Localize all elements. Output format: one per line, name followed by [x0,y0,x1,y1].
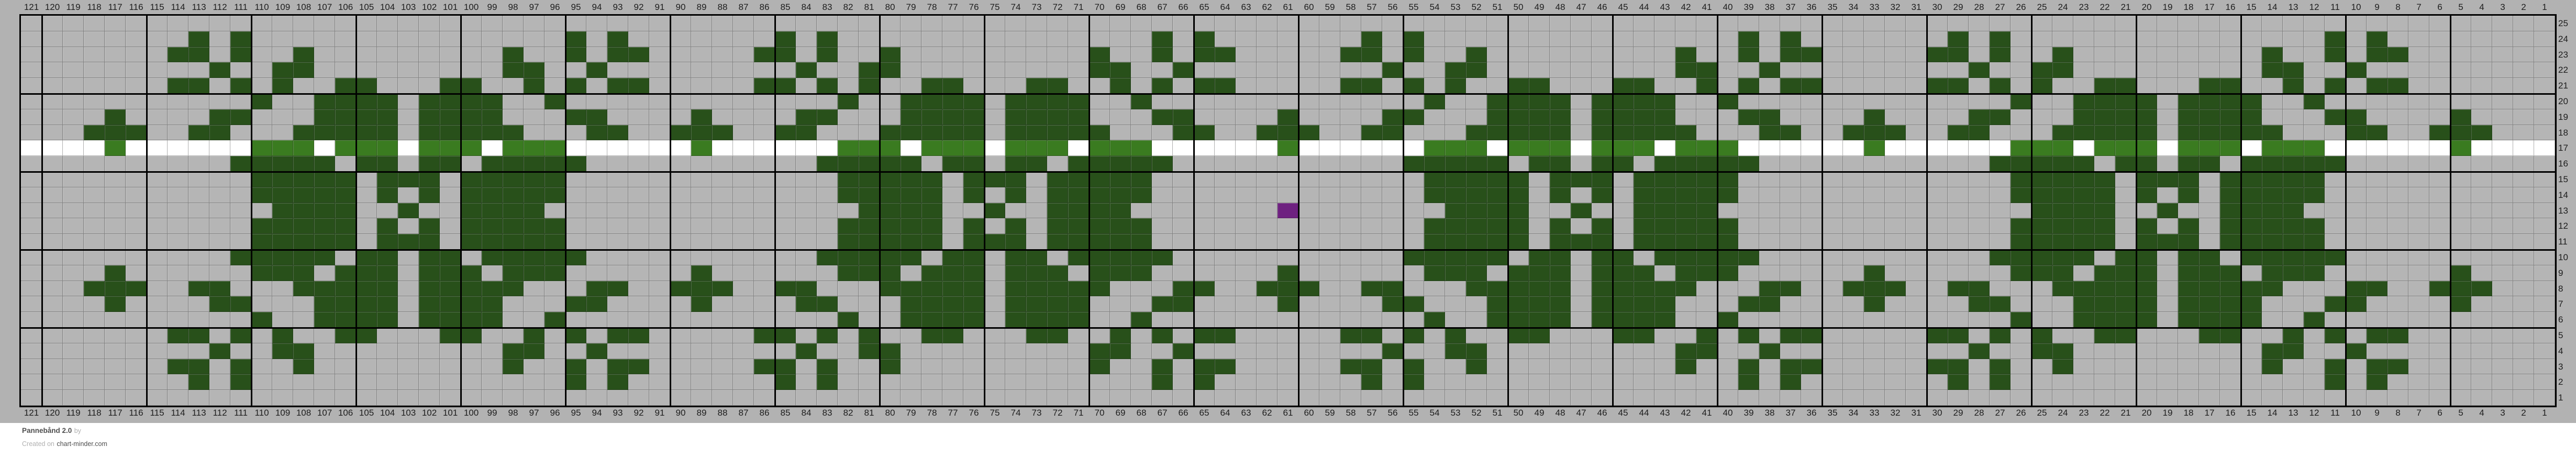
grid-cell[interactable] [2408,328,2429,343]
grid-cell[interactable] [1068,156,1089,172]
grid-cell[interactable] [2136,94,2157,109]
grid-cell[interactable] [901,312,921,328]
grid-cell[interactable] [1382,125,1403,141]
grid-cell[interactable] [1508,234,1529,250]
grid-cell[interactable] [1990,374,2011,390]
grid-cell[interactable] [1969,203,1990,219]
grid-cell[interactable] [733,47,754,63]
grid-cell[interactable] [880,281,901,297]
grid-cell[interactable] [1236,359,1257,375]
grid-cell[interactable] [670,234,691,250]
grid-cell[interactable] [209,281,230,297]
grid-cell[interactable] [1298,62,1319,78]
grid-cell[interactable] [461,109,482,125]
grid-cell[interactable] [963,47,984,63]
grid-cell[interactable] [2031,374,2052,390]
grid-cell[interactable] [2157,140,2178,156]
grid-cell[interactable] [209,312,230,328]
grid-cell[interactable] [1298,140,1319,156]
grid-cell[interactable] [838,109,859,125]
grid-cell[interactable] [1717,218,1738,234]
grid-cell[interactable] [733,125,754,141]
grid-cell[interactable] [586,140,607,156]
grid-cell[interactable] [712,359,733,375]
grid-cell[interactable] [251,281,272,297]
grid-cell[interactable] [2450,156,2471,172]
grid-cell[interactable] [293,343,314,359]
grid-cell[interactable] [1068,390,1089,406]
grid-cell[interactable] [2052,187,2073,203]
grid-cell[interactable] [607,359,628,375]
grid-cell[interactable] [586,218,607,234]
grid-cell[interactable] [942,125,963,141]
grid-cell[interactable] [1236,16,1257,31]
grid-cell[interactable] [2073,250,2094,265]
grid-cell[interactable] [817,265,838,281]
grid-cell[interactable] [1801,250,1822,265]
grid-cell[interactable] [1990,125,2011,141]
grid-cell[interactable] [2513,94,2534,109]
grid-cell[interactable] [230,312,251,328]
grid-cell[interactable] [1340,234,1361,250]
grid-cell[interactable] [2220,374,2241,390]
grid-cell[interactable] [272,109,293,125]
grid-cell[interactable] [293,16,314,31]
grid-cell[interactable] [1026,172,1047,187]
grid-cell[interactable] [796,62,817,78]
grid-cell[interactable] [2283,218,2304,234]
grid-cell[interactable] [2513,328,2534,343]
grid-cell[interactable] [2220,265,2241,281]
grid-cell[interactable] [1927,109,1948,125]
grid-cell[interactable] [1927,62,1948,78]
grid-cell[interactable] [2262,281,2283,297]
grid-cell[interactable] [1990,94,2011,109]
grid-cell[interactable] [545,109,565,125]
grid-cell[interactable] [2450,328,2471,343]
grid-cell[interactable] [733,94,754,109]
grid-cell[interactable] [1780,250,1801,265]
grid-cell[interactable] [817,62,838,78]
grid-cell[interactable] [1236,62,1257,78]
grid-cell[interactable] [1675,328,1696,343]
grid-cell[interactable] [1885,374,1906,390]
grid-cell[interactable] [419,156,440,172]
grid-cell[interactable] [880,109,901,125]
grid-cell[interactable] [1466,156,1487,172]
grid-cell[interactable] [168,62,188,78]
grid-cell[interactable] [2199,343,2220,359]
grid-cell[interactable] [1487,312,1508,328]
grid-cell[interactable] [921,156,942,172]
grid-cell[interactable] [691,265,712,281]
grid-cell[interactable] [942,250,963,265]
grid-cell[interactable] [670,265,691,281]
grid-cell[interactable] [272,203,293,219]
grid-cell[interactable] [1131,156,1152,172]
grid-cell[interactable] [1110,359,1131,375]
grid-cell[interactable] [1131,109,1152,125]
grid-cell[interactable] [880,234,901,250]
grid-cell[interactable] [1298,94,1319,109]
grid-cell[interactable] [796,265,817,281]
grid-cell[interactable] [2429,125,2450,141]
grid-cell[interactable] [1340,16,1361,31]
grid-cell[interactable] [2513,109,2534,125]
grid-cell[interactable] [901,265,921,281]
grid-cell[interactable] [1319,16,1340,31]
grid-cell[interactable] [984,94,1005,109]
grid-cell[interactable] [1026,374,1047,390]
grid-cell[interactable] [1759,312,1780,328]
grid-cell[interactable] [2513,62,2534,78]
grid-cell[interactable] [2346,281,2367,297]
grid-cell[interactable] [1885,265,1906,281]
grid-cell[interactable] [1005,109,1026,125]
grid-cell[interactable] [649,109,670,125]
grid-cell[interactable] [1278,312,1298,328]
grid-cell[interactable] [2178,312,2199,328]
grid-cell[interactable] [63,328,84,343]
grid-cell[interactable] [482,16,503,31]
grid-cell[interactable] [817,281,838,297]
grid-cell[interactable] [2136,328,2157,343]
grid-cell[interactable] [1948,31,1969,47]
grid-cell[interactable] [335,250,356,265]
grid-cell[interactable] [2094,218,2115,234]
grid-cell[interactable] [2388,328,2408,343]
grid-cell[interactable] [880,94,901,109]
grid-cell[interactable] [1215,109,1236,125]
grid-cell[interactable] [1990,47,2011,63]
grid-cell[interactable] [1592,140,1613,156]
grid-cell[interactable] [2367,156,2388,172]
grid-cell[interactable] [712,312,733,328]
grid-cell[interactable] [2178,47,2199,63]
grid-cell[interactable] [1110,31,1131,47]
grid-cell[interactable] [1110,374,1131,390]
grid-cell[interactable] [1236,187,1257,203]
grid-cell[interactable] [335,187,356,203]
grid-cell[interactable] [670,328,691,343]
grid-cell[interactable] [1990,62,2011,78]
grid-cell[interactable] [126,374,147,390]
grid-cell[interactable] [2157,296,2178,312]
grid-cell[interactable] [1445,312,1466,328]
grid-cell[interactable] [272,78,293,94]
grid-cell[interactable] [796,312,817,328]
grid-cell[interactable] [1487,94,1508,109]
grid-cell[interactable] [293,265,314,281]
grid-cell[interactable] [733,78,754,94]
grid-cell[interactable] [2346,62,2367,78]
grid-cell[interactable] [1047,234,1068,250]
grid-cell[interactable] [1173,390,1194,406]
grid-cell[interactable] [1278,374,1298,390]
grid-cell[interactable] [1466,281,1487,297]
grid-cell[interactable] [607,78,628,94]
grid-cell[interactable] [1655,359,1675,375]
grid-cell[interactable] [188,94,209,109]
grid-cell[interactable] [880,359,901,375]
grid-cell[interactable] [2429,390,2450,406]
grid-cell[interactable] [1236,109,1257,125]
grid-cell[interactable] [1361,47,1382,63]
grid-cell[interactable] [1382,328,1403,343]
grid-cell[interactable] [2367,16,2388,31]
grid-cell[interactable] [901,187,921,203]
grid-cell[interactable] [1005,78,1026,94]
grid-cell[interactable] [545,31,565,47]
grid-cell[interactable] [440,62,461,78]
grid-cell[interactable] [2346,16,2367,31]
grid-cell[interactable] [63,78,84,94]
grid-cell[interactable] [628,218,649,234]
grid-cell[interactable] [712,296,733,312]
grid-cell[interactable] [524,374,545,390]
grid-cell[interactable] [1466,62,1487,78]
grid-cell[interactable] [775,62,796,78]
grid-cell[interactable] [2157,218,2178,234]
grid-cell[interactable] [1005,125,1026,141]
grid-cell[interactable] [2429,296,2450,312]
grid-cell[interactable] [628,47,649,63]
grid-cell[interactable] [503,281,524,297]
grid-cell[interactable] [419,390,440,406]
grid-cell[interactable] [1278,172,1298,187]
grid-cell[interactable] [2429,16,2450,31]
grid-cell[interactable] [1026,328,1047,343]
grid-cell[interactable] [2199,187,2220,203]
grid-cell[interactable] [2262,94,2283,109]
grid-cell[interactable] [1696,265,1717,281]
grid-cell[interactable] [1298,296,1319,312]
grid-cell[interactable] [1487,328,1508,343]
grid-cell[interactable] [1257,296,1278,312]
grid-cell[interactable] [1424,312,1445,328]
grid-cell[interactable] [2471,187,2492,203]
grid-cell[interactable] [670,296,691,312]
grid-cell[interactable] [2304,374,2325,390]
grid-cell[interactable] [2471,94,2492,109]
grid-cell[interactable] [1487,62,1508,78]
grid-cell[interactable] [524,16,545,31]
grid-cell[interactable] [1236,94,1257,109]
grid-cell[interactable] [1466,109,1487,125]
grid-cell[interactable] [859,218,880,234]
grid-cell[interactable] [1613,47,1634,63]
grid-cell[interactable] [1257,374,1278,390]
grid-cell[interactable] [230,125,251,141]
grid-cell[interactable] [1319,31,1340,47]
grid-cell[interactable] [1592,250,1613,265]
grid-cell[interactable] [356,250,377,265]
grid-cell[interactable] [1047,78,1068,94]
grid-cell[interactable] [1759,31,1780,47]
grid-cell[interactable] [147,62,168,78]
grid-cell[interactable] [1382,281,1403,297]
grid-cell[interactable] [209,374,230,390]
grid-cell[interactable] [901,296,921,312]
grid-cell[interactable] [545,374,565,390]
grid-cell[interactable] [251,156,272,172]
grid-cell[interactable] [461,94,482,109]
grid-cell[interactable] [2450,31,2471,47]
grid-cell[interactable] [2262,218,2283,234]
grid-cell[interactable] [2136,125,2157,141]
grid-cell[interactable] [1634,172,1655,187]
grid-cell[interactable] [1173,31,1194,47]
grid-cell[interactable] [356,312,377,328]
grid-cell[interactable] [440,78,461,94]
grid-cell[interactable] [1173,281,1194,297]
grid-cell[interactable] [942,390,963,406]
grid-cell[interactable] [838,312,859,328]
grid-cell[interactable] [1948,62,1969,78]
grid-cell[interactable] [1194,172,1215,187]
grid-cell[interactable] [1173,125,1194,141]
grid-cell[interactable] [984,172,1005,187]
grid-cell[interactable] [1613,156,1634,172]
grid-cell[interactable] [2220,125,2241,141]
grid-cell[interactable] [1675,31,1696,47]
grid-cell[interactable] [251,31,272,47]
grid-cell[interactable] [419,265,440,281]
grid-cell[interactable] [1403,390,1424,406]
grid-cell[interactable] [607,265,628,281]
grid-cell[interactable] [1759,374,1780,390]
grid-cell[interactable] [607,16,628,31]
grid-cell[interactable] [1089,374,1110,390]
grid-cell[interactable] [335,312,356,328]
grid-cell[interactable] [1047,156,1068,172]
grid-cell[interactable] [1801,172,1822,187]
grid-cell[interactable] [2178,140,2199,156]
grid-cell[interactable] [1319,125,1340,141]
grid-cell[interactable] [377,156,398,172]
grid-cell[interactable] [691,328,712,343]
grid-cell[interactable] [1822,250,1843,265]
grid-cell[interactable] [607,328,628,343]
grid-cell[interactable] [817,218,838,234]
grid-cell[interactable] [2471,31,2492,47]
grid-cell[interactable] [1717,265,1738,281]
grid-cell[interactable] [293,296,314,312]
grid-cell[interactable] [1801,156,1822,172]
grid-cell[interactable] [1780,62,1801,78]
grid-cell[interactable] [565,62,586,78]
grid-cell[interactable] [1131,234,1152,250]
grid-cell[interactable] [2220,47,2241,63]
grid-cell[interactable] [419,218,440,234]
grid-cell[interactable] [188,125,209,141]
grid-cell[interactable] [1361,343,1382,359]
grid-cell[interactable] [2471,312,2492,328]
grid-cell[interactable] [2283,296,2304,312]
grid-cell[interactable] [649,374,670,390]
grid-cell[interactable] [188,62,209,78]
grid-cell[interactable] [1927,281,1948,297]
grid-cell[interactable] [1696,62,1717,78]
grid-cell[interactable] [1215,234,1236,250]
grid-cell[interactable] [1089,156,1110,172]
grid-cell[interactable] [21,250,42,265]
grid-cell[interactable] [1424,31,1445,47]
grid-cell[interactable] [2178,156,2199,172]
grid-cell[interactable] [1487,296,1508,312]
grid-cell[interactable] [1173,296,1194,312]
grid-cell[interactable] [1613,265,1634,281]
grid-cell[interactable] [1906,203,1927,219]
grid-cell[interactable] [2367,94,2388,109]
grid-cell[interactable] [963,187,984,203]
grid-cell[interactable] [2388,125,2408,141]
grid-cell[interactable] [2304,140,2325,156]
grid-cell[interactable] [942,31,963,47]
grid-cell[interactable] [775,343,796,359]
grid-cell[interactable] [2094,203,2115,219]
grid-cell[interactable] [1319,281,1340,297]
grid-cell[interactable] [649,250,670,265]
grid-cell[interactable] [2241,156,2262,172]
grid-cell[interactable] [1236,140,1257,156]
grid-cell[interactable] [2388,62,2408,78]
grid-cell[interactable] [2283,265,2304,281]
grid-cell[interactable] [2011,390,2031,406]
grid-cell[interactable] [1110,156,1131,172]
grid-cell[interactable] [105,31,126,47]
grid-cell[interactable] [1361,187,1382,203]
grid-cell[interactable] [84,109,105,125]
grid-cell[interactable] [1089,265,1110,281]
grid-cell[interactable] [901,359,921,375]
grid-cell[interactable] [859,78,880,94]
grid-cell[interactable] [984,125,1005,141]
grid-cell[interactable] [1780,374,1801,390]
grid-cell[interactable] [2136,390,2157,406]
grid-cell[interactable] [1675,265,1696,281]
grid-cell[interactable] [733,281,754,297]
grid-cell[interactable] [2115,140,2136,156]
grid-cell[interactable] [1508,203,1529,219]
grid-cell[interactable] [2346,359,2367,375]
grid-cell[interactable] [1927,343,1948,359]
grid-cell[interactable] [2388,203,2408,219]
grid-cell[interactable] [398,343,419,359]
grid-cell[interactable] [1780,140,1801,156]
grid-cell[interactable] [440,250,461,265]
grid-cell[interactable] [2429,94,2450,109]
grid-cell[interactable] [524,94,545,109]
grid-cell[interactable] [1424,359,1445,375]
grid-cell[interactable] [1948,390,1969,406]
grid-cell[interactable] [2199,250,2220,265]
grid-cell[interactable] [356,390,377,406]
grid-cell[interactable] [1843,390,1864,406]
grid-cell[interactable] [482,187,503,203]
grid-cell[interactable] [1948,156,1969,172]
grid-cell[interactable] [1089,390,1110,406]
grid-cell[interactable] [2241,250,2262,265]
grid-cell[interactable] [1780,218,1801,234]
grid-cell[interactable] [1529,78,1550,94]
grid-cell[interactable] [2241,203,2262,219]
grid-cell[interactable] [1885,47,1906,63]
grid-cell[interactable] [2408,140,2429,156]
grid-cell[interactable] [2157,312,2178,328]
grid-cell[interactable] [2094,47,2115,63]
grid-cell[interactable] [2262,47,2283,63]
